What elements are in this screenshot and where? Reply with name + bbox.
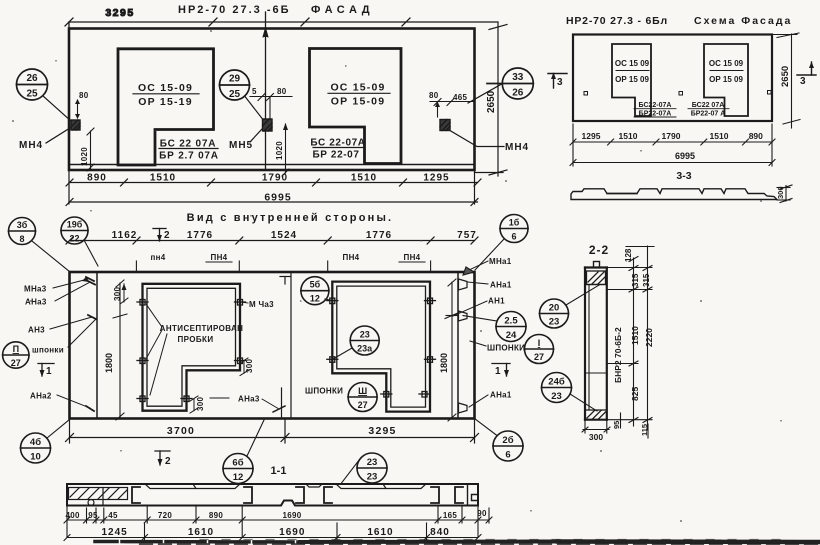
- svg-text:1800: 1800: [439, 353, 449, 373]
- svg-text:2650: 2650: [486, 90, 497, 113]
- svg-text:1510: 1510: [619, 131, 638, 141]
- svg-text:1: 1: [46, 366, 52, 377]
- svg-text:6: 6: [505, 450, 510, 461]
- svg-text:ОС 15 09: ОС 15 09: [709, 59, 744, 68]
- svg-text:2-2: 2-2: [589, 243, 609, 257]
- svg-text:МНа1: МНа1: [489, 257, 512, 266]
- svg-text:2: 2: [164, 230, 170, 241]
- svg-text:ОР 15 09: ОР 15 09: [615, 75, 649, 84]
- svg-text:1б: 1б: [509, 218, 520, 228]
- svg-text:80: 80: [79, 91, 89, 100]
- svg-text:МН4: МН4: [19, 140, 43, 151]
- svg-text:БС 22 07А: БС 22 07А: [160, 139, 217, 150]
- svg-text:300: 300: [113, 287, 122, 301]
- svg-text:840: 840: [430, 527, 450, 538]
- svg-text:шпонки: шпонки: [32, 346, 64, 355]
- svg-text:НР2-70 27.3 - 6Бл: НР2-70 27.3 - 6Бл: [566, 15, 668, 27]
- svg-text:БС 22-07А: БС 22-07А: [310, 138, 365, 149]
- svg-text:25: 25: [229, 89, 241, 100]
- svg-text:2б: 2б: [502, 435, 513, 446]
- svg-text:ПН4: ПН4: [211, 253, 228, 262]
- svg-text:300: 300: [589, 432, 603, 442]
- svg-text:6б: 6б: [232, 458, 243, 469]
- svg-text:ОС 15-09: ОС 15-09: [138, 82, 193, 94]
- svg-text:АНа1: АНа1: [490, 281, 512, 290]
- svg-text:3295: 3295: [105, 7, 134, 19]
- svg-text:300: 300: [245, 359, 254, 373]
- svg-text:890: 890: [209, 511, 223, 520]
- svg-text:АНа2: АНа2: [30, 392, 52, 401]
- svg-text:1245: 1245: [101, 527, 127, 538]
- svg-text:1510: 1510: [630, 326, 640, 345]
- svg-text:1-1: 1-1: [271, 465, 287, 477]
- svg-text:27: 27: [358, 400, 368, 410]
- svg-text:825: 825: [630, 387, 640, 401]
- svg-text:НР2-70 27.3 -6Б: НР2-70 27.3 -6Б: [178, 4, 291, 16]
- svg-text:12: 12: [310, 294, 320, 304]
- svg-text:1524: 1524: [271, 230, 297, 241]
- svg-text:3700: 3700: [167, 425, 195, 437]
- svg-text:МН5: МН5: [229, 140, 253, 151]
- svg-text:БНР2 70-6Б-2: БНР2 70-6Б-2: [613, 327, 623, 383]
- svg-text:90: 90: [477, 509, 487, 518]
- svg-text:БР 22-07: БР 22-07: [312, 150, 359, 161]
- svg-text:М Ча3: М Ча3: [249, 300, 274, 309]
- svg-text:23а: 23а: [357, 344, 373, 354]
- svg-text:ОР 15 09: ОР 15 09: [709, 75, 743, 84]
- svg-text:300: 300: [776, 186, 785, 199]
- svg-text:ФАСАД: ФАСАД: [311, 4, 374, 16]
- svg-text:1162: 1162: [112, 230, 138, 241]
- svg-text:23: 23: [367, 457, 378, 468]
- svg-text:5б: 5б: [310, 280, 321, 290]
- svg-text:ОС 15-09: ОС 15-09: [330, 82, 385, 94]
- svg-text:890: 890: [749, 131, 763, 141]
- svg-text:23: 23: [551, 391, 562, 402]
- svg-text:1295: 1295: [423, 173, 449, 184]
- svg-text:22: 22: [69, 234, 79, 244]
- svg-text:720: 720: [158, 511, 172, 520]
- svg-text:1800: 1800: [104, 353, 114, 373]
- svg-text:45: 45: [108, 511, 118, 520]
- svg-text:пн4: пн4: [150, 253, 165, 262]
- svg-text:1790: 1790: [662, 131, 681, 141]
- svg-text:2220: 2220: [644, 328, 654, 347]
- svg-text:1: 1: [495, 366, 501, 377]
- svg-text:2: 2: [165, 456, 171, 467]
- svg-text:27: 27: [11, 358, 21, 368]
- svg-text:Вид с внутренней стороны.: Вид с внутренней стороны.: [187, 212, 394, 224]
- svg-text:1776: 1776: [187, 230, 213, 241]
- svg-text:3295: 3295: [368, 425, 396, 437]
- svg-text:1610: 1610: [188, 527, 214, 538]
- svg-text:315: 315: [631, 273, 640, 287]
- svg-text:МН4: МН4: [505, 142, 529, 153]
- svg-text:80: 80: [277, 87, 287, 96]
- svg-text:29: 29: [229, 74, 241, 85]
- svg-text:Ш: Ш: [358, 386, 367, 396]
- svg-text:10: 10: [30, 452, 41, 463]
- svg-text:БР22-07А: БР22-07А: [639, 111, 672, 118]
- svg-text:5: 5: [252, 87, 257, 96]
- svg-text:8: 8: [19, 234, 24, 244]
- svg-text:6: 6: [511, 232, 516, 242]
- svg-text:33: 33: [512, 72, 524, 83]
- svg-text:АНа3: АНа3: [25, 298, 47, 307]
- svg-text:890: 890: [87, 173, 107, 184]
- svg-text:115: 115: [640, 424, 649, 436]
- svg-text:I: I: [538, 338, 541, 348]
- svg-text:2.5: 2.5: [504, 316, 518, 327]
- svg-text:ШПОНКИ: ШПОНКИ: [305, 387, 343, 396]
- svg-text:1295: 1295: [582, 131, 601, 141]
- svg-text:АНа1: АНа1: [490, 391, 512, 400]
- svg-text:400: 400: [65, 511, 79, 520]
- svg-text:3-3: 3-3: [676, 170, 691, 182]
- svg-text:ПН4: ПН4: [404, 253, 421, 262]
- svg-text:6995: 6995: [264, 192, 291, 204]
- svg-text:23: 23: [360, 330, 370, 340]
- svg-text:АНТИСЕПТИРОВАН: АНТИСЕПТИРОВАН: [160, 324, 244, 333]
- svg-text:1020: 1020: [80, 147, 89, 166]
- svg-text:МНа3: МНа3: [24, 285, 47, 294]
- svg-text:1610: 1610: [367, 527, 393, 538]
- svg-text:3б: 3б: [17, 220, 28, 230]
- svg-text:27: 27: [534, 352, 544, 362]
- svg-text:6995: 6995: [675, 151, 695, 161]
- svg-text:80: 80: [429, 91, 439, 100]
- svg-text:БР22-07 А: БР22-07 А: [691, 111, 726, 118]
- svg-text:ПН4: ПН4: [343, 253, 360, 262]
- svg-text:1790: 1790: [262, 173, 288, 184]
- svg-text:3: 3: [557, 77, 563, 88]
- svg-text:АНа3: АНа3: [238, 395, 260, 404]
- svg-text:1020: 1020: [275, 141, 284, 160]
- svg-text:95: 95: [88, 511, 98, 520]
- svg-text:ОР 15-19: ОР 15-19: [138, 96, 193, 108]
- svg-text:БС22 07А: БС22 07А: [692, 102, 725, 109]
- svg-text:АН3: АН3: [28, 326, 45, 335]
- svg-text:19б: 19б: [67, 220, 83, 230]
- svg-text:25: 25: [26, 89, 38, 100]
- svg-text:128: 128: [624, 248, 633, 262]
- svg-text:23: 23: [367, 472, 378, 483]
- svg-text:1690: 1690: [279, 527, 305, 538]
- svg-text:2650: 2650: [780, 66, 791, 87]
- svg-text:26: 26: [26, 73, 38, 84]
- svg-text:БС22-07А: БС22-07А: [639, 102, 672, 109]
- svg-text:24б: 24б: [548, 377, 565, 388]
- svg-text:АН1: АН1: [488, 297, 505, 306]
- svg-text:ШПОНКИ: ШПОНКИ: [487, 344, 525, 353]
- svg-text:26: 26: [512, 88, 524, 99]
- svg-text:20: 20: [549, 303, 560, 314]
- svg-text:1510: 1510: [351, 173, 377, 184]
- svg-text:12: 12: [233, 472, 244, 483]
- svg-text:465: 465: [453, 93, 467, 102]
- svg-text:1776: 1776: [366, 230, 392, 241]
- svg-text:БР 2.7 07А: БР 2.7 07А: [159, 151, 219, 162]
- svg-text:300: 300: [196, 397, 205, 411]
- svg-text:165: 165: [443, 511, 457, 520]
- svg-text:П: П: [13, 344, 19, 354]
- svg-text:ПРОБКИ: ПРОБКИ: [178, 335, 214, 344]
- svg-text:4б: 4б: [30, 437, 41, 448]
- svg-text:ОС 15 09: ОС 15 09: [615, 59, 650, 68]
- svg-text:1690: 1690: [283, 511, 302, 520]
- svg-text:315: 315: [642, 273, 651, 287]
- svg-text:757: 757: [457, 230, 477, 241]
- svg-text:24: 24: [506, 330, 517, 341]
- svg-text:95: 95: [612, 421, 621, 429]
- svg-text:23: 23: [549, 317, 560, 328]
- svg-text:1510: 1510: [150, 173, 176, 184]
- svg-text:ОР 15-09: ОР 15-09: [331, 96, 386, 108]
- svg-text:Схема Фасада: Схема Фасада: [694, 15, 792, 27]
- svg-text:3: 3: [800, 76, 806, 87]
- svg-text:1510: 1510: [710, 131, 729, 141]
